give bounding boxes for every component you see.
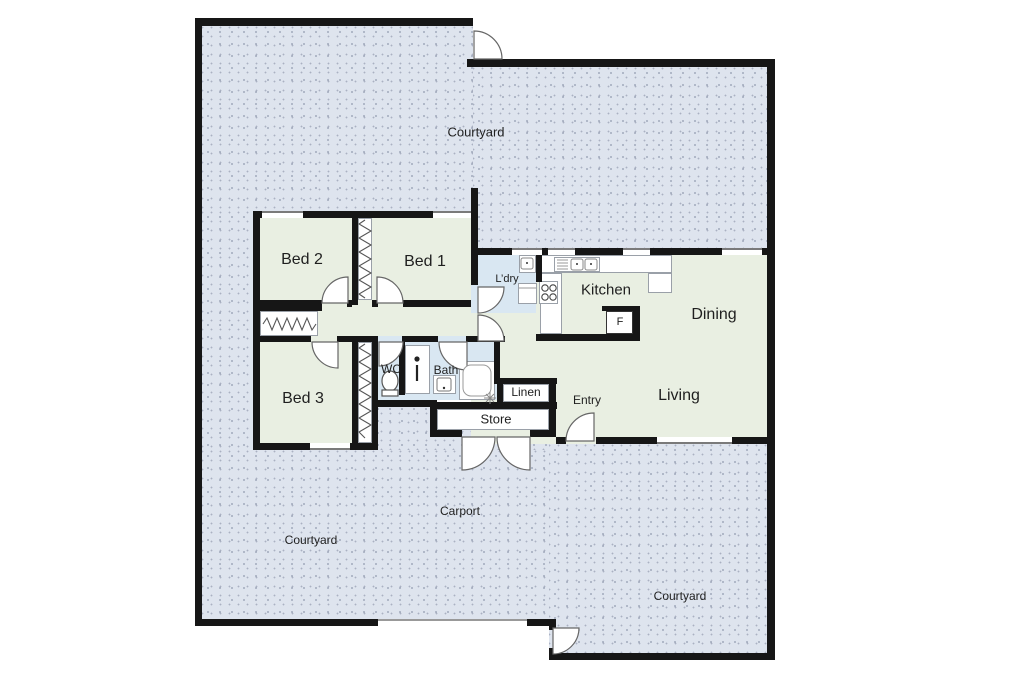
room-label-dining: Dining (691, 306, 736, 324)
fridge-label: F (617, 316, 624, 328)
room-label-bed1: Bed 1 (404, 253, 446, 271)
room-label-courtyard-bottom-left: Courtyard (285, 533, 338, 547)
room-label-laundry: L’dry (495, 273, 518, 285)
room-label-bath: Bath (434, 363, 459, 377)
floor-plan: Courtyard Bed 2 Bed 1 L’dry Kitchen Dini… (0, 0, 1024, 683)
door-swing-icon (566, 413, 594, 441)
wardrobe-zigzag-icon (359, 344, 371, 438)
room-label-kitchen: Kitchen (581, 282, 631, 299)
door-swing-icon (474, 31, 502, 59)
vanity-basin-icon (437, 378, 451, 391)
door-swing-icon (497, 437, 530, 470)
room-label-courtyard-top: Courtyard (447, 125, 504, 140)
room-label-courtyard-bottom-right: Courtyard (654, 589, 707, 603)
cooktop-icon (542, 285, 556, 300)
room-label-living: Living (658, 387, 700, 405)
door-swing-icon (553, 628, 579, 654)
shower-icon (414, 356, 419, 381)
bathtub-icon (463, 365, 496, 404)
room-label-linen: Linen (511, 385, 540, 399)
door-swing-icon (462, 437, 495, 470)
room-label-bed3: Bed 3 (282, 390, 324, 408)
room-label-store: Store (480, 412, 511, 427)
door-swing-icon (322, 277, 348, 303)
room-label-wc: WC (381, 362, 401, 376)
room-label-carport: Carport (440, 504, 480, 518)
wardrobe-zigzag-icon (263, 318, 316, 330)
room-label-entry: Entry (573, 393, 601, 407)
wardrobe-zigzag-icon (359, 220, 371, 298)
laundry-tub-icon (521, 258, 533, 269)
door-swing-icon (478, 287, 504, 313)
room-label-bed2: Bed 2 (281, 251, 323, 269)
kitchen-sink-icon (557, 259, 597, 270)
door-swing-icon (377, 277, 403, 303)
door-swing-icon (478, 315, 504, 341)
door-swing-icon (312, 342, 338, 368)
symbol-overlay (0, 0, 1024, 683)
